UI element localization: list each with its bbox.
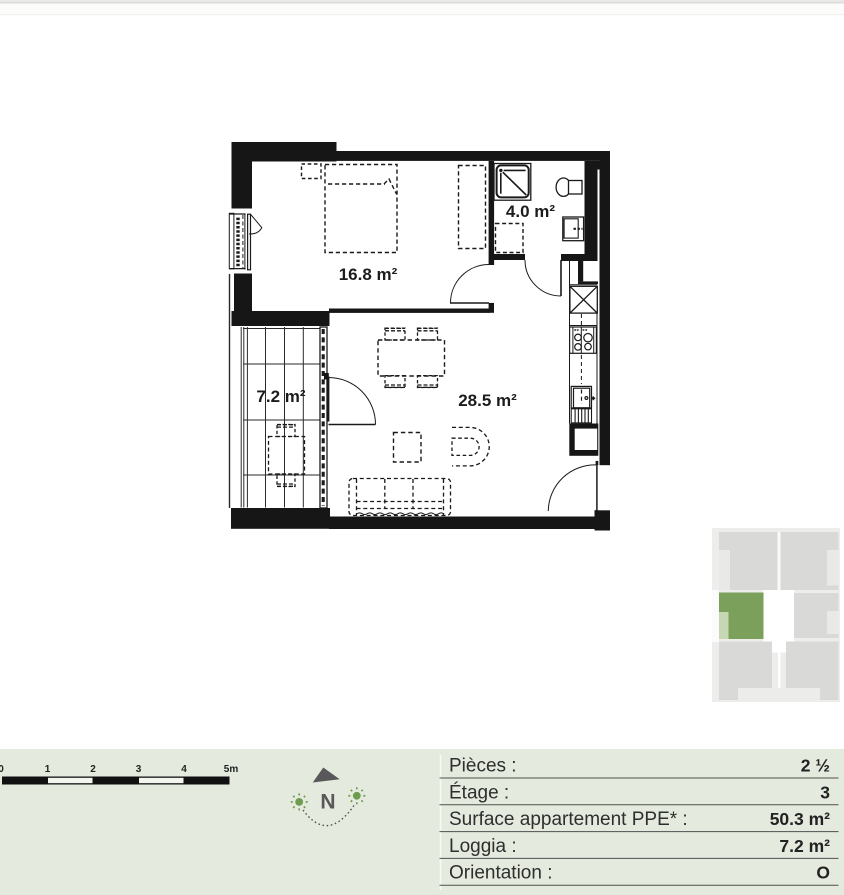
svg-text:50.3 m²: 50.3 m² <box>770 809 830 829</box>
svg-text:1: 1 <box>45 764 51 775</box>
svg-text:28.5 m²: 28.5 m² <box>458 391 517 410</box>
svg-text:4.0 m²: 4.0 m² <box>506 202 555 221</box>
svg-text:16.8 m²: 16.8 m² <box>339 265 398 284</box>
svg-text:N: N <box>320 791 335 814</box>
svg-text:2: 2 <box>90 764 96 775</box>
svg-text:O: O <box>816 863 830 883</box>
svg-text:7.2 m²: 7.2 m² <box>256 387 305 406</box>
svg-text:Loggia :: Loggia : <box>449 836 517 857</box>
svg-text:3: 3 <box>820 782 830 802</box>
svg-text:4: 4 <box>181 764 187 775</box>
svg-text:3: 3 <box>136 764 142 775</box>
svg-text:Orientation :: Orientation : <box>449 863 553 884</box>
svg-text:Surface appartement PPE* :: Surface appartement PPE* : <box>449 809 688 830</box>
svg-text:Pièces :: Pièces : <box>449 756 517 777</box>
svg-text:2 ½: 2 ½ <box>801 756 830 776</box>
svg-text:0: 0 <box>0 764 4 775</box>
svg-text:7.2 m²: 7.2 m² <box>779 836 830 856</box>
svg-text:Étage :: Étage : <box>449 782 509 803</box>
svg-text:5m: 5m <box>224 764 239 775</box>
